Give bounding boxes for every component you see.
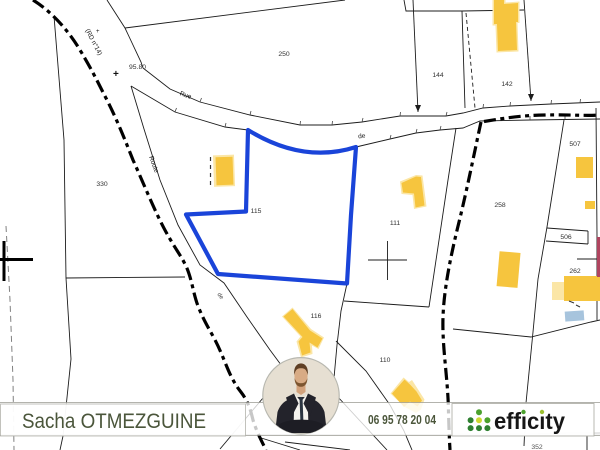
svg-text:142: 142 (501, 81, 513, 88)
svg-text:+: + (113, 69, 119, 80)
svg-text:Sacha OTMEZGUINE: Sacha OTMEZGUINE (22, 410, 206, 433)
svg-text:506: 506 (560, 234, 572, 241)
svg-text:de: de (358, 133, 366, 141)
svg-text:507: 507 (569, 141, 581, 148)
svg-text:144: 144 (432, 72, 444, 79)
svg-text:258: 258 (494, 202, 506, 209)
svg-text:250: 250 (278, 51, 290, 58)
svg-text:262: 262 (569, 268, 581, 275)
svg-text:352: 352 (531, 444, 543, 450)
svg-text:95.80: 95.80 (129, 64, 146, 71)
svg-text:111: 111 (390, 220, 401, 227)
svg-text:115: 115 (251, 208, 262, 215)
svg-text:116: 116 (311, 313, 322, 320)
svg-text:330: 330 (96, 181, 108, 188)
svg-text:06 95 78 20 04: 06 95 78 20 04 (368, 412, 437, 427)
svg-text:effıcıty: effıcıty (494, 408, 565, 434)
svg-text:+: + (96, 29, 100, 35)
svg-text:110: 110 (380, 357, 391, 364)
